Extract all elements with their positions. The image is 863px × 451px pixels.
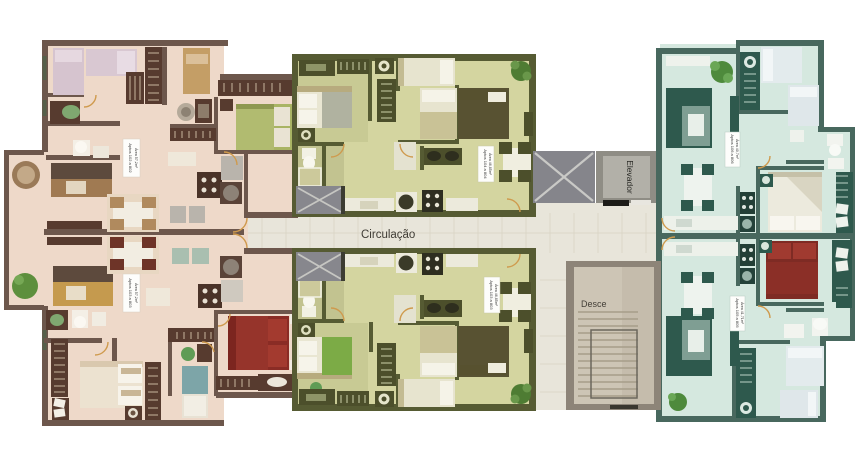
svg-text:Aptos 105 a 805: Aptos 105 a 805 [735, 298, 740, 328]
svg-text:Elevador: Elevador [625, 160, 635, 194]
svg-text:Área 41,71m²: Área 41,71m² [740, 302, 744, 325]
svg-text:Aptos 104 a 804: Aptos 104 a 804 [483, 149, 488, 179]
svg-text:Desce: Desce [581, 299, 607, 309]
svg-text:Área 46,85m²: Área 46,85m² [488, 153, 492, 176]
svg-text:Aptos 102 a 802: Aptos 102 a 802 [128, 143, 133, 173]
svg-text:Área 46,85m²: Área 46,85m² [494, 284, 498, 307]
svg-text:Aptos 106 a 806: Aptos 106 a 806 [730, 134, 735, 164]
svg-text:Área 57,2m²: Área 57,2m² [134, 283, 138, 304]
svg-text:Área 40,7m²: Área 40,7m² [735, 139, 739, 160]
svg-text:Aptos 103 a 803: Aptos 103 a 803 [128, 278, 133, 308]
svg-text:Aptos 103 a 803: Aptos 103 a 803 [489, 280, 494, 310]
svg-text:Área 57,2m²: Área 57,2m² [134, 148, 138, 169]
svg-text:Circulação: Circulação [361, 229, 415, 241]
